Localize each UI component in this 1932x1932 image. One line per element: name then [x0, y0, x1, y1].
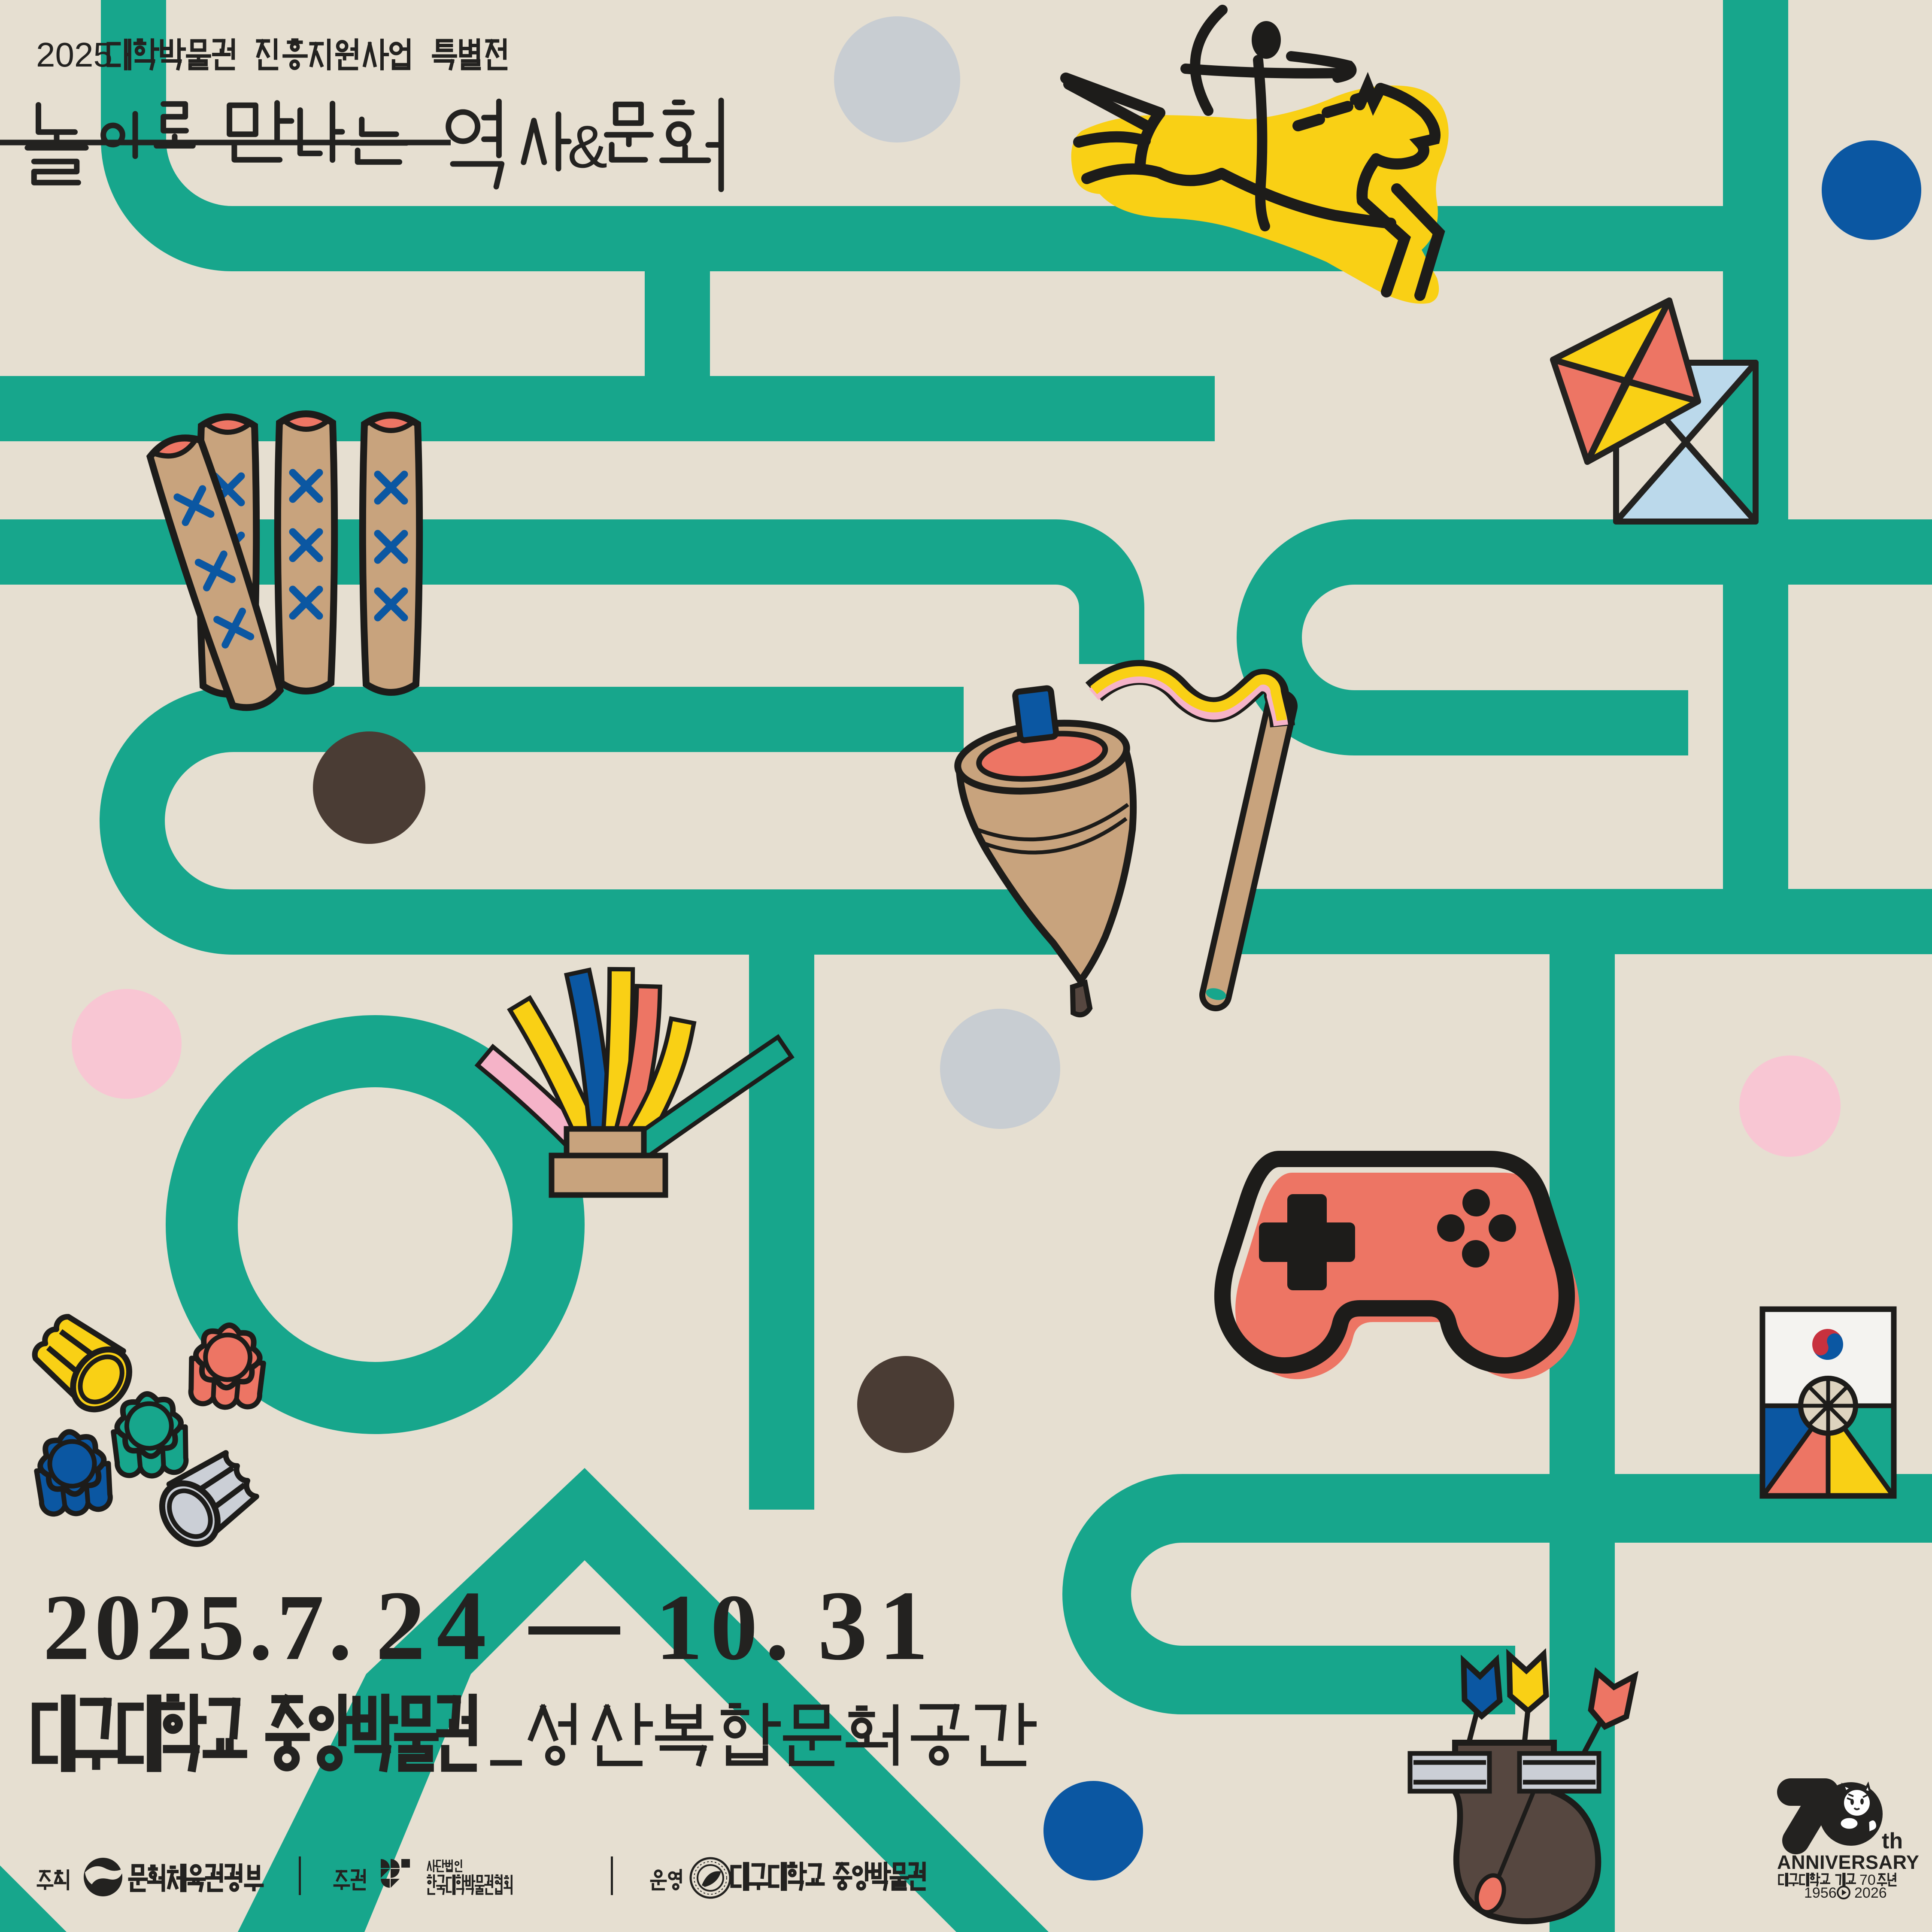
- svg-text:1956: 1956: [1804, 1885, 1837, 1901]
- svg-text:10.: 10.: [655, 1575, 797, 1680]
- svg-text:31: 31: [818, 1571, 940, 1681]
- svg-text:ANNIVERSARY: ANNIVERSARY: [1777, 1851, 1919, 1873]
- svg-text:2025.7.: 2025.7.: [43, 1575, 356, 1680]
- svg-text:2026: 2026: [1854, 1885, 1887, 1901]
- svg-text:2025: 2025: [36, 36, 112, 74]
- svg-text:th: th: [1882, 1829, 1903, 1853]
- svg-text:24: 24: [376, 1571, 497, 1681]
- svg-text:&: &: [567, 113, 607, 180]
